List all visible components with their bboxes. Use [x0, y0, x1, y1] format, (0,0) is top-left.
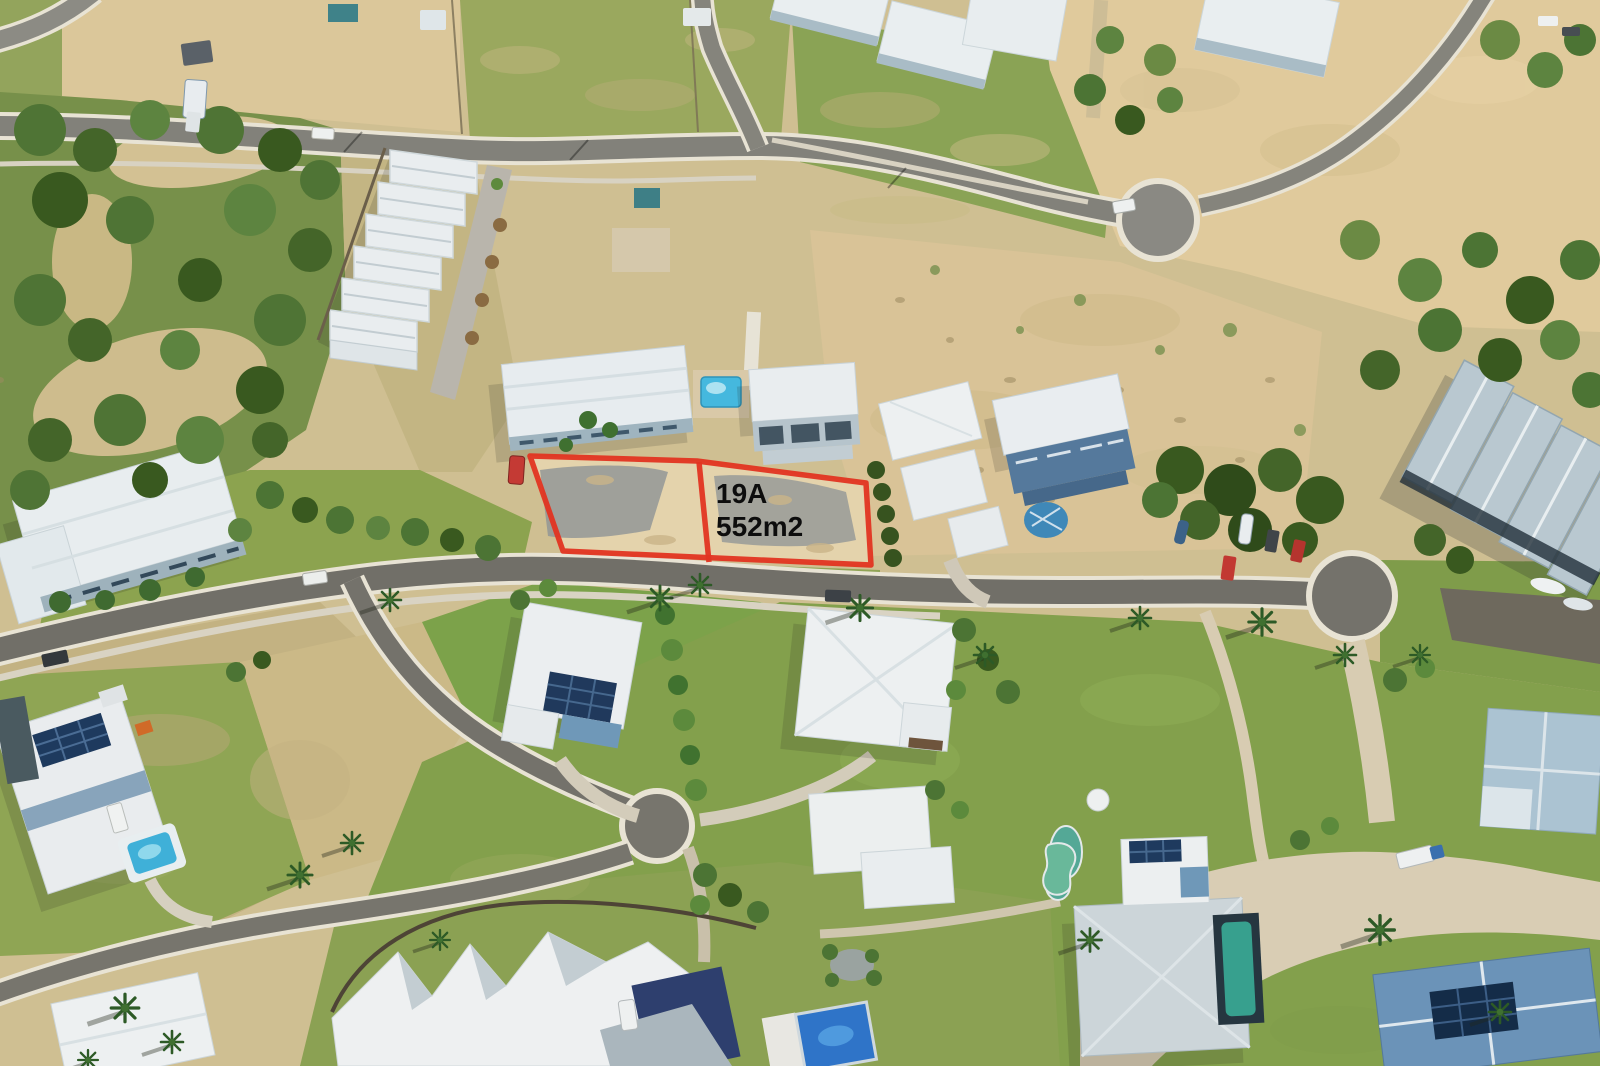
car-middle-road — [825, 590, 851, 603]
caravan-b — [683, 8, 711, 26]
grey-roof-house — [1061, 897, 1266, 1066]
shed-teal — [634, 188, 660, 208]
apartment-building-b — [736, 362, 861, 466]
trampoline — [1087, 789, 1109, 811]
white-house-north-of-grey — [1121, 837, 1209, 906]
car-topright-b — [1562, 27, 1580, 36]
caravan-a — [420, 10, 446, 30]
car-vacant-lot — [185, 111, 201, 132]
lot-id-label: 19A — [716, 478, 767, 509]
aerial-photo: 19A 552m2 — [0, 0, 1600, 1066]
container — [328, 4, 358, 22]
hip-roof-house — [780, 607, 960, 767]
solar-house-centre — [490, 600, 642, 760]
van-top-road — [312, 127, 335, 140]
lot-area-label: 552m2 — [716, 511, 803, 542]
aerial-photo-canvas: 19A 552m2 — [0, 0, 1600, 1066]
concrete-slab — [612, 228, 670, 272]
car-bottom — [618, 999, 638, 1031]
lagoon-pool — [1043, 843, 1075, 895]
pool-teal — [1221, 921, 1256, 1016]
light-blue-house-right — [1480, 708, 1600, 834]
apartment-building-a — [486, 345, 694, 462]
truck-vacant-lot — [181, 40, 214, 66]
car-topright-a — [1538, 16, 1558, 26]
red-car-by-lot — [508, 456, 525, 485]
